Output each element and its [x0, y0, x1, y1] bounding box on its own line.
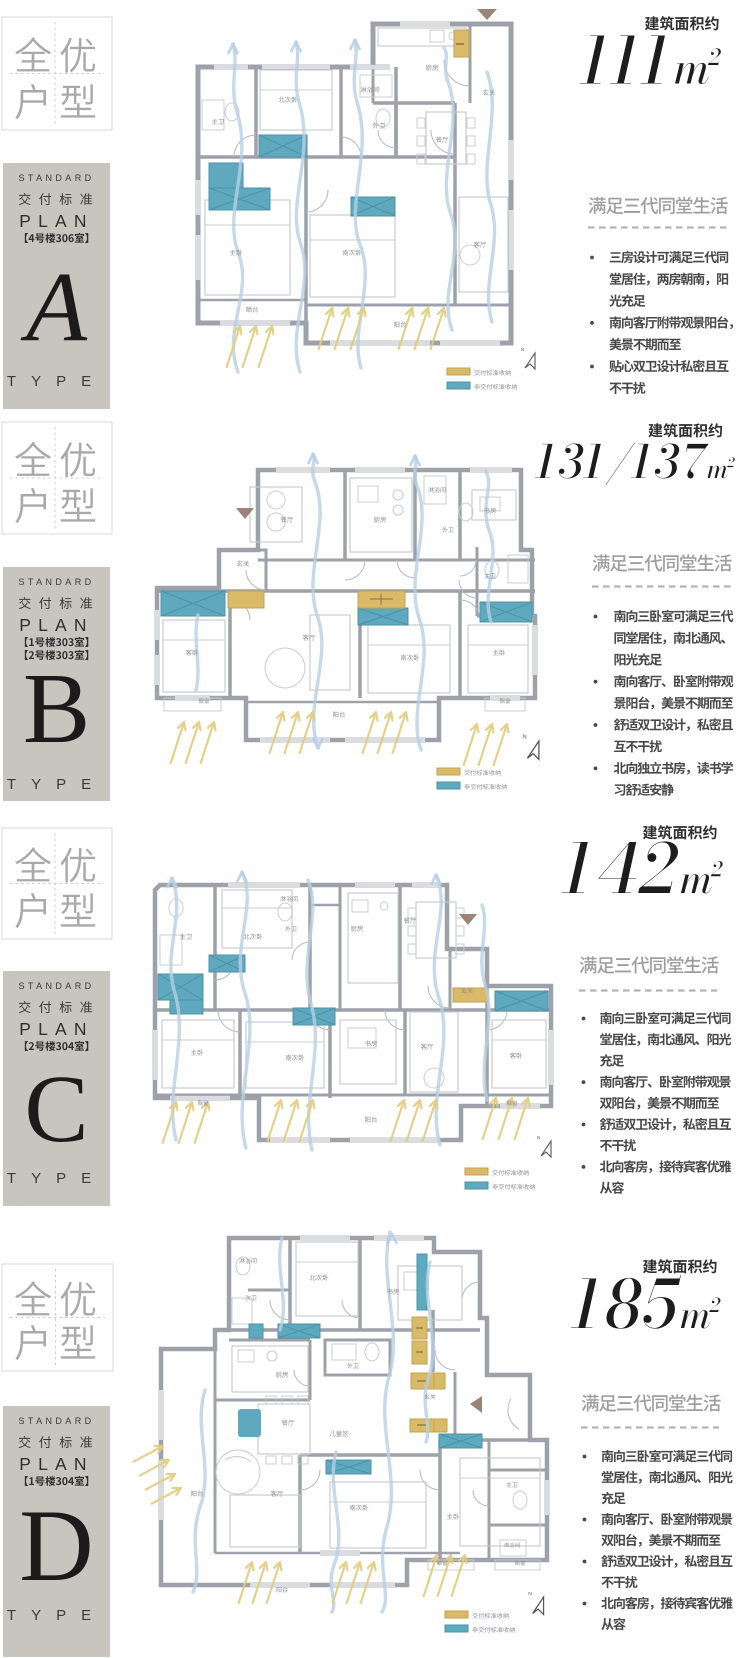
- svg-text:N: N: [523, 735, 527, 741]
- svg-text:STANDARD: STANDARD: [18, 1416, 94, 1426]
- svg-text:C: C: [24, 1055, 88, 1162]
- svg-text:PLAN: PLAN: [19, 1019, 94, 1039]
- svg-text:TYPE: TYPE: [7, 373, 106, 390]
- svg-text:N: N: [528, 1591, 532, 1597]
- svg-text:A: A: [20, 251, 88, 362]
- svg-text:TYPE: TYPE: [7, 776, 106, 793]
- svg-text:N: N: [521, 347, 524, 352]
- svg-text:STANDARD: STANDARD: [18, 577, 94, 587]
- svg-text:PLAN: PLAN: [19, 1454, 94, 1474]
- svg-text:TYPE: TYPE: [7, 1170, 106, 1187]
- svg-text:PLAN: PLAN: [19, 211, 94, 231]
- svg-text:B: B: [23, 652, 90, 764]
- svg-text:PLAN: PLAN: [19, 615, 94, 635]
- svg-text:N: N: [537, 1135, 540, 1140]
- svg-text:STANDARD: STANDARD: [18, 981, 94, 991]
- svg-text:D: D: [19, 1489, 93, 1603]
- svg-text:TYPE: TYPE: [7, 1607, 106, 1624]
- svg-text:STANDARD: STANDARD: [18, 173, 94, 183]
